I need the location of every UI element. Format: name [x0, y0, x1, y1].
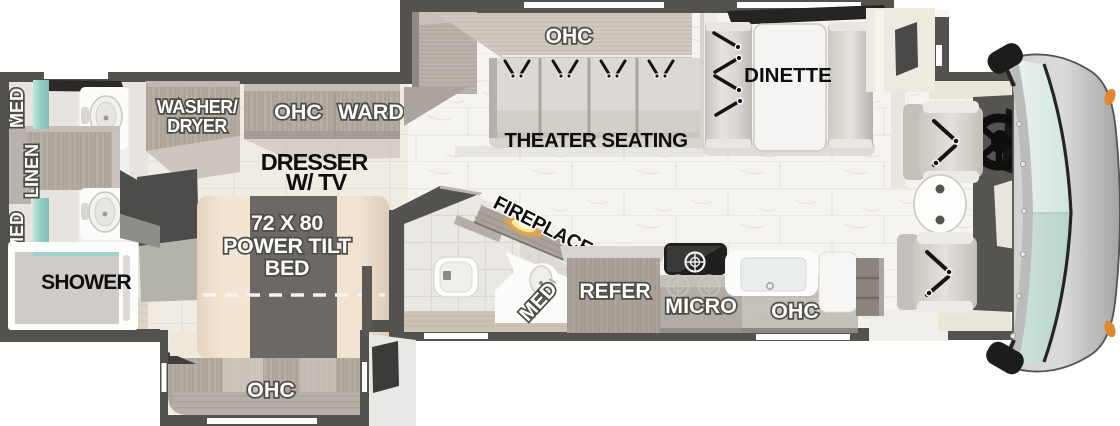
svg-text:OHC: OHC: [274, 100, 322, 124]
svg-text:OHC: OHC: [771, 299, 819, 323]
svg-text:W/ TV: W/ TV: [286, 169, 348, 195]
svg-text:MICRO: MICRO: [665, 294, 737, 318]
svg-text:MED: MED: [7, 88, 27, 128]
svg-text:THEATER SEATING: THEATER SEATING: [504, 129, 687, 152]
svg-text:BED: BED: [265, 256, 310, 280]
svg-text:REFER: REFER: [579, 280, 650, 303]
svg-text:DINETTE: DINETTE: [744, 64, 832, 87]
svg-text:WARD: WARD: [338, 100, 404, 124]
svg-text:72 X 80: 72 X 80: [251, 211, 323, 235]
svg-text:POWER TILT: POWER TILT: [223, 234, 351, 258]
svg-text:WASHER/: WASHER/: [157, 97, 238, 117]
svg-text:OHC: OHC: [546, 25, 593, 48]
svg-text:SHOWER: SHOWER: [41, 271, 131, 294]
svg-text:DRYER: DRYER: [167, 116, 227, 136]
svg-text:LINEN: LINEN: [22, 144, 42, 198]
svg-text:OHC: OHC: [247, 378, 295, 402]
